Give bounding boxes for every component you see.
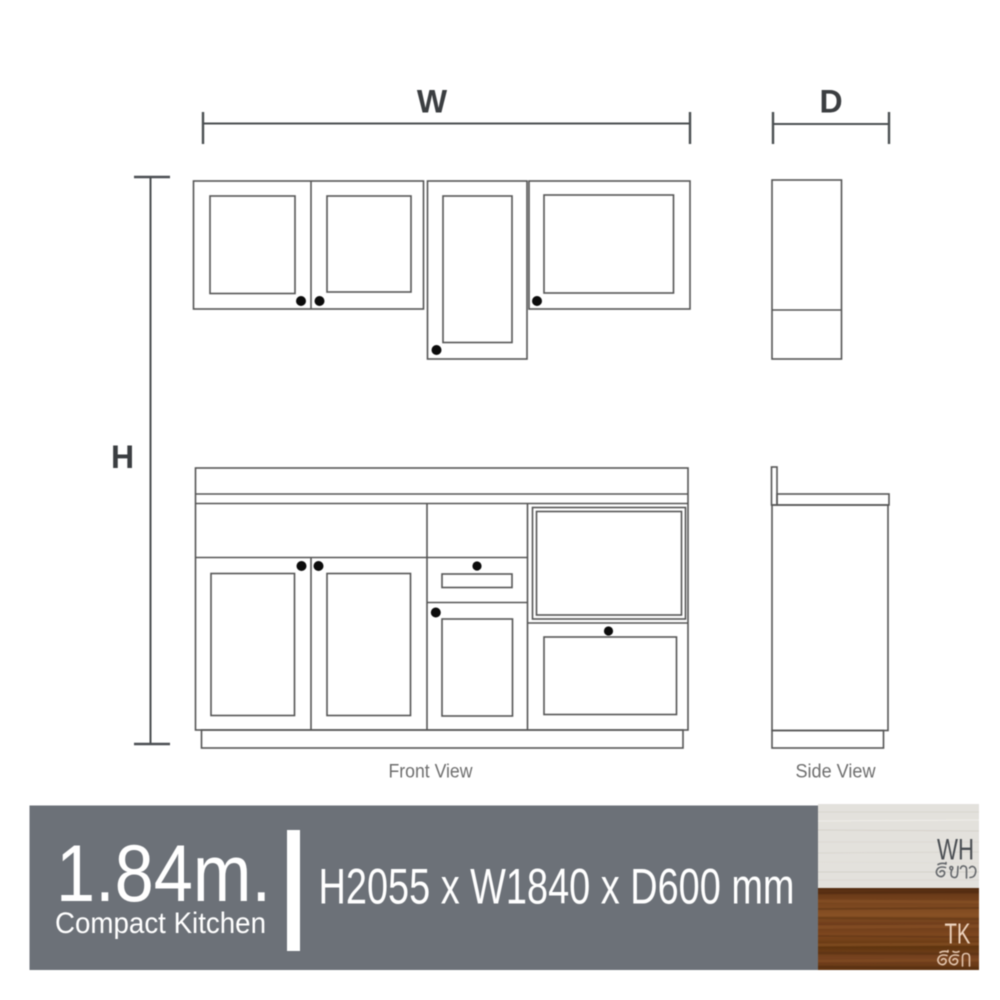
svg-text:Side View: Side View [796,761,877,783]
svg-text:WH: WH [937,834,974,867]
svg-text:Front View: Front View [389,761,474,783]
svg-text:1.84m.: 1.84m. [56,829,271,919]
svg-text:H2055 x W1840 x D600 mm: H2055 x W1840 x D600 mm [319,859,795,915]
svg-text:D: D [819,84,842,120]
svg-text:TK: TK [945,919,971,951]
svg-text:Compact Kitchen: Compact Kitchen [55,907,266,940]
svg-text:W: W [417,84,448,120]
svg-text:H: H [111,439,134,475]
